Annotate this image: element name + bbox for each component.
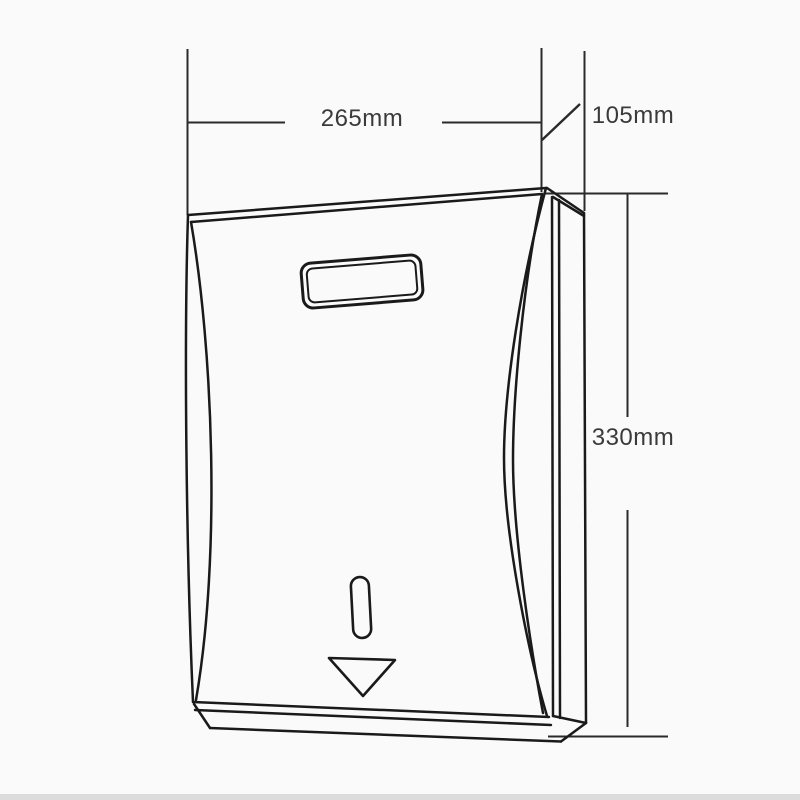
side-panel-left-edge-a bbox=[552, 197, 553, 716]
viewing-window-inner bbox=[306, 260, 417, 303]
height-dimension-label: 330mm bbox=[583, 424, 683, 452]
dispense-arrow-icon bbox=[329, 658, 395, 696]
side-panel-top-edge-inner bbox=[553, 197, 584, 216]
bottom-band-outer-line bbox=[210, 728, 561, 742]
depth-oblique-tick bbox=[542, 104, 580, 140]
image-bottom-edge-line bbox=[0, 794, 800, 800]
bottom-left-corner-cut bbox=[194, 704, 210, 728]
side-panel-bottom-corner bbox=[561, 723, 586, 742]
depth-dimension-label: 105mm bbox=[583, 102, 683, 130]
front-top-edge-outer bbox=[188, 188, 546, 215]
dispense-slot bbox=[350, 577, 371, 639]
dimension-diagram: 265mm 105mm 330mm bbox=[0, 0, 800, 800]
side-panel-right-edge bbox=[584, 213, 586, 723]
front-right-edge-outer bbox=[504, 188, 547, 716]
front-left-edge-inner bbox=[191, 222, 211, 700]
dispense-slot-outline bbox=[350, 577, 371, 639]
front-top-edge-inner bbox=[191, 194, 542, 222]
width-dimension-label: 265mm bbox=[262, 105, 462, 133]
front-bottom-edge bbox=[193, 702, 549, 717]
dimension-lines bbox=[187, 48, 668, 737]
viewing-window-outer bbox=[300, 254, 423, 308]
side-panel-left-edge-b bbox=[559, 200, 560, 718]
bottom-band-middle-line bbox=[195, 710, 551, 725]
front-left-edge-outer bbox=[186, 215, 193, 702]
side-panel-bottom-edge bbox=[553, 716, 586, 723]
viewing-window bbox=[300, 254, 423, 308]
